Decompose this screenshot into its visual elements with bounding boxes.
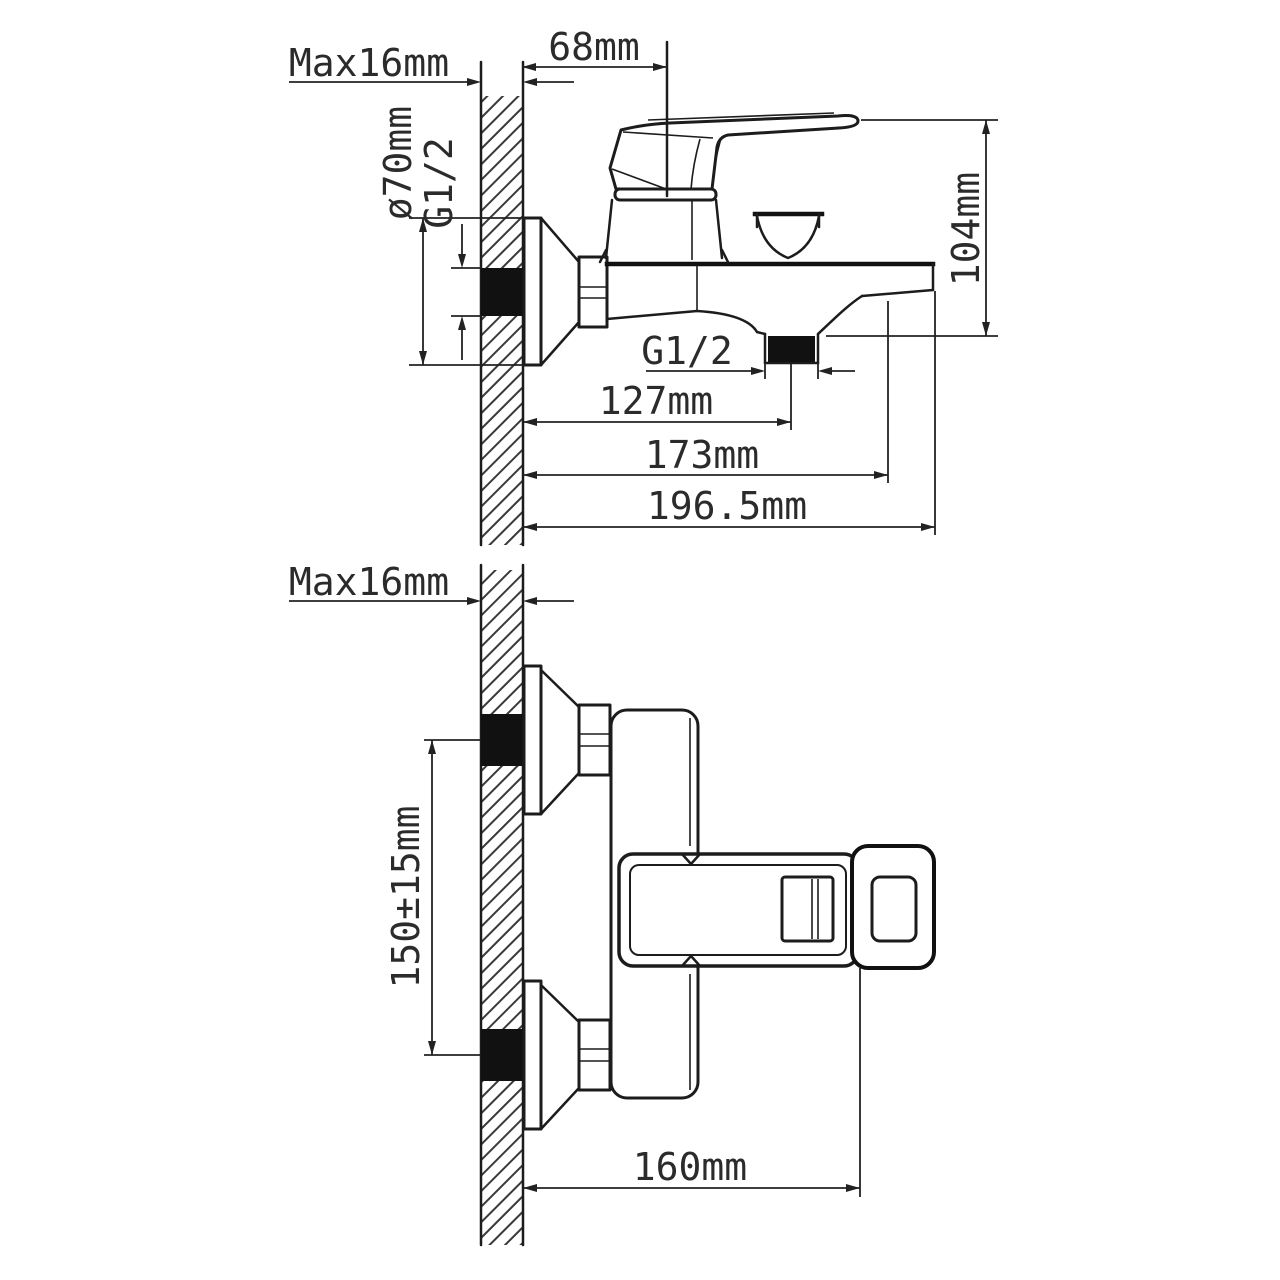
dim-label-escutcheon-diameter: ø70mm bbox=[376, 106, 420, 220]
wall-section-plan-view bbox=[481, 565, 523, 1245]
dim-label-outlet-center-depth: 127mm bbox=[599, 379, 713, 423]
cold-inlet-seal bbox=[481, 1029, 523, 1081]
dim-label-body-length: 160mm bbox=[633, 1145, 747, 1189]
handle-pivot-band bbox=[615, 189, 716, 200]
faucet-installation-drawing: Max16mm 68mm ø70mm bbox=[0, 0, 1280, 1280]
escutcheon-flange bbox=[524, 218, 541, 365]
connection-nut bbox=[579, 705, 610, 775]
escutcheon-flange bbox=[524, 666, 541, 814]
dim-label-outlet-thread: G1/2 bbox=[641, 329, 733, 373]
escutcheon-flange bbox=[524, 981, 541, 1129]
handle-detail-recess bbox=[782, 877, 833, 941]
hot-inlet-seal bbox=[481, 714, 523, 766]
wall-hatch bbox=[481, 96, 523, 545]
dim-label-wall-thickness-plan: Max16mm bbox=[289, 560, 449, 604]
wall-inlet-seal bbox=[481, 268, 523, 316]
connection-nut bbox=[579, 257, 607, 327]
handle-end-opening bbox=[872, 877, 916, 941]
technical-drawing-page: Max16mm 68mm ø70mm bbox=[0, 0, 1280, 1280]
shower-outlet-port bbox=[768, 336, 815, 362]
dim-label-inlet-spacing: 150±15mm bbox=[384, 805, 428, 988]
handle-plan-view bbox=[619, 846, 934, 968]
dim-label-total-height: 104mm bbox=[944, 172, 988, 286]
dim-label-wall-thickness-side: Max16mm bbox=[289, 41, 449, 85]
dim-label-center-offset: 68mm bbox=[548, 25, 640, 69]
wall-hatch bbox=[481, 570, 523, 1245]
connection-nut bbox=[579, 1020, 610, 1090]
dim-label-inlet-thread: G1/2 bbox=[417, 137, 461, 229]
wall-section-side-view bbox=[481, 62, 523, 545]
dim-label-total-depth: 196.5mm bbox=[647, 484, 807, 528]
dim-label-spout-depth: 173mm bbox=[645, 433, 759, 477]
